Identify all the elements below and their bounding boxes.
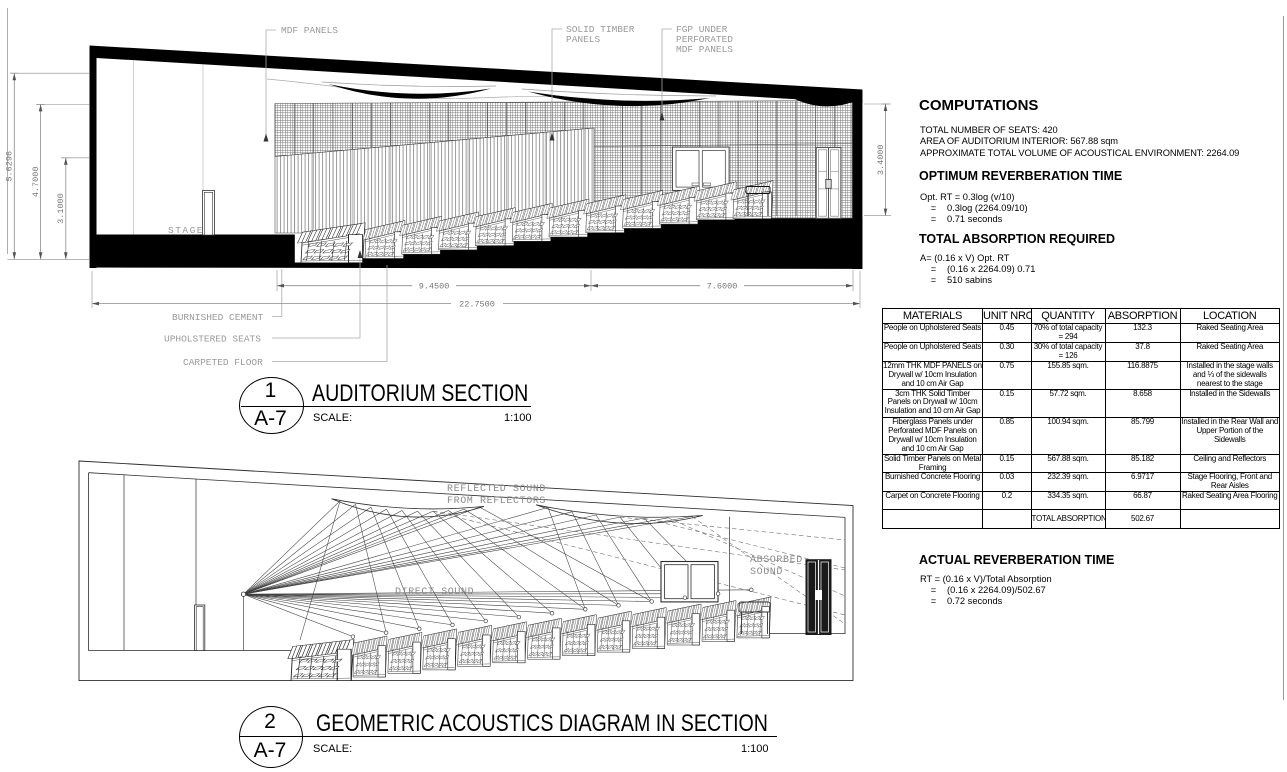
- svg-text:4.7000: 4.7000: [31, 167, 41, 198]
- svg-text:UPHOLSTERED SEATS: UPHOLSTERED SEATS: [164, 334, 261, 345]
- svg-text:FROM REFLECTORS: FROM REFLECTORS: [447, 496, 546, 507]
- svg-text:3.4000: 3.4000: [876, 144, 886, 175]
- svg-text:ABSORBED: ABSORBED: [750, 555, 803, 566]
- svg-text:PANELS: PANELS: [566, 34, 601, 45]
- svg-text:REFLECTED SOUND: REFLECTED SOUND: [447, 484, 546, 495]
- svg-text:BURNISHED CEMENT: BURNISHED CEMENT: [172, 312, 264, 323]
- svg-text:9.4500: 9.4500: [419, 282, 450, 292]
- svg-text:STAGE: STAGE: [168, 225, 204, 236]
- svg-text:22.7500: 22.7500: [459, 299, 495, 309]
- svg-text:3.1000: 3.1000: [56, 193, 66, 224]
- svg-text:SOUND: SOUND: [750, 567, 783, 578]
- svg-text:CARPETED FLOOR: CARPETED FLOOR: [183, 357, 263, 368]
- svg-text:DIRECT SOUND: DIRECT SOUND: [395, 587, 474, 598]
- svg-text:7.6000: 7.6000: [707, 282, 738, 292]
- svg-text:MDF PANELS: MDF PANELS: [676, 44, 733, 55]
- svg-text:MDF PANELS: MDF PANELS: [281, 25, 338, 36]
- svg-text:5.6296: 5.6296: [5, 151, 15, 182]
